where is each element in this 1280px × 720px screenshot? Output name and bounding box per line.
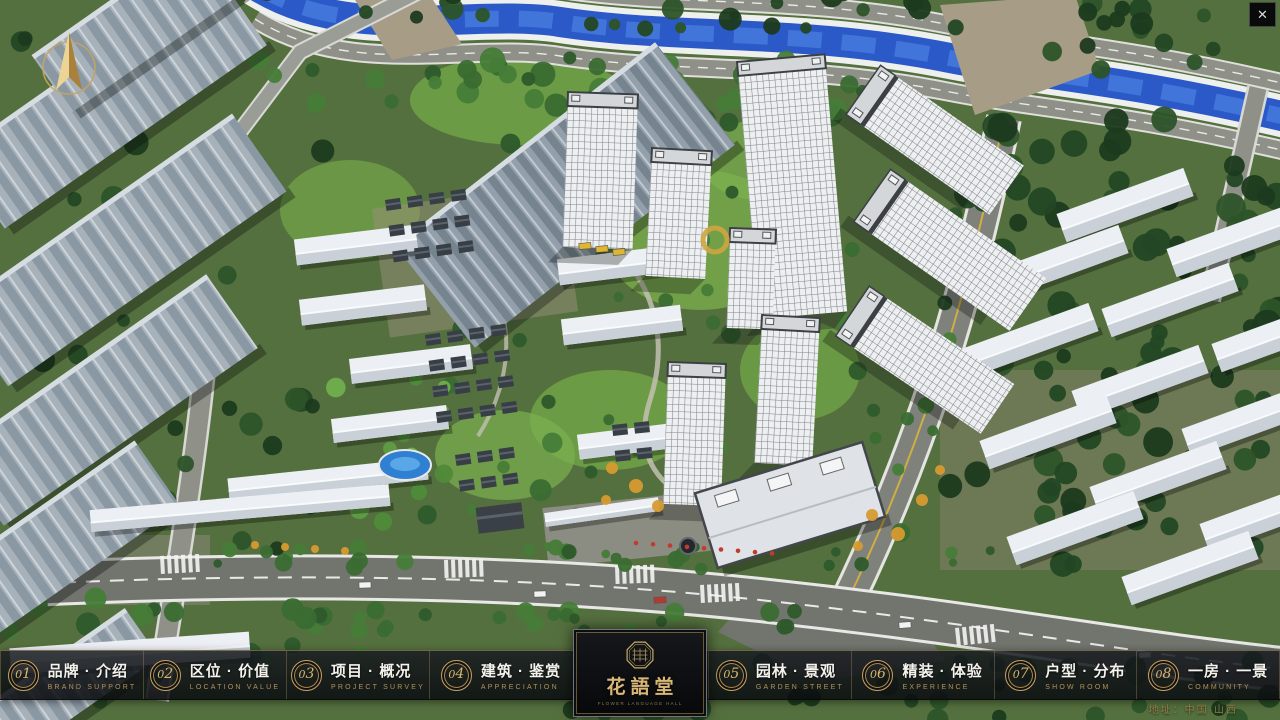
nav-item-sublabel: PROJECT SURVEY: [331, 684, 425, 691]
seal-icon: [625, 640, 655, 670]
number-badge: 07: [1005, 660, 1036, 691]
nav-item-label: 户型 · 分布: [1045, 660, 1125, 681]
number-badge: 04: [441, 660, 472, 691]
masterplan-3d-view[interactable]: [0, 0, 1280, 720]
nav-item-project-survey[interactable]: 03 项目 · 概况PROJECT SURVEY: [286, 651, 429, 699]
brand-logo-panel[interactable]: 花語堂 FLOWER LANGUAGE HALL: [573, 629, 707, 717]
number-badge: 06: [862, 660, 893, 691]
number-badge: 08: [1148, 660, 1179, 691]
nav-group-right: 05 园林 · 景观GARDEN STREET 06 精装 · 体验EXPERI…: [708, 651, 1280, 699]
brand-title: 花語堂: [601, 672, 678, 699]
close-icon: ✕: [1257, 8, 1268, 21]
nav-item-sublabel: BRAND SUPPORT: [48, 684, 137, 691]
nav-item-label: 品牌 · 介绍: [48, 660, 128, 681]
nav-item-room-view[interactable]: 08 一房 · 一景COMMUNITY: [1136, 651, 1280, 699]
nav-item-architecture[interactable]: 04 建筑 · 鉴赏APPRECIATION: [429, 651, 572, 699]
nav-item-garden-landscape[interactable]: 05 园林 · 景观GARDEN STREET: [708, 651, 851, 699]
nav-item-label: 项目 · 概况: [331, 660, 411, 681]
number-badge: 01: [8, 660, 39, 691]
number-badge: 03: [291, 660, 322, 691]
nav-group-left: 01 品牌 · 介绍BRAND SUPPORT 02 区位 · 价值LOCATI…: [0, 651, 572, 699]
nav-item-sublabel: GARDEN STREET: [756, 684, 844, 691]
nav-item-sublabel: EXPERIENCE: [902, 684, 969, 691]
close-button[interactable]: ✕: [1249, 2, 1276, 27]
nav-item-sublabel: APPRECIATION: [481, 684, 559, 691]
nav-item-label: 一房 · 一景: [1188, 660, 1268, 681]
nav-item-label: 区位 · 价值: [190, 660, 270, 681]
nav-item-sublabel: LOCATION VALUE: [190, 684, 280, 691]
nav-item-location-value[interactable]: 02 区位 · 价值LOCATION VALUE: [143, 651, 286, 699]
number-badge: 02: [150, 660, 181, 691]
nav-item-label: 精装 · 体验: [902, 660, 982, 681]
nav-item-sublabel: COMMUNITY: [1188, 684, 1251, 691]
address-label: 地址：中国·山西: [1149, 701, 1238, 716]
nav-item-floorplan-distribution[interactable]: 07 户型 · 分布SHOW ROOM: [994, 651, 1137, 699]
brand-caption: FLOWER LANGUAGE HALL: [597, 701, 682, 706]
nav-item-brand-intro[interactable]: 01 品牌 · 介绍BRAND SUPPORT: [0, 651, 143, 699]
nav-item-sublabel: SHOW ROOM: [1045, 684, 1110, 691]
nav-item-label: 园林 · 景观: [756, 660, 836, 681]
number-badge: 05: [716, 660, 747, 691]
nav-item-label: 建筑 · 鉴赏: [481, 660, 561, 681]
nav-item-interior-experience[interactable]: 06 精装 · 体验EXPERIENCE: [851, 651, 994, 699]
